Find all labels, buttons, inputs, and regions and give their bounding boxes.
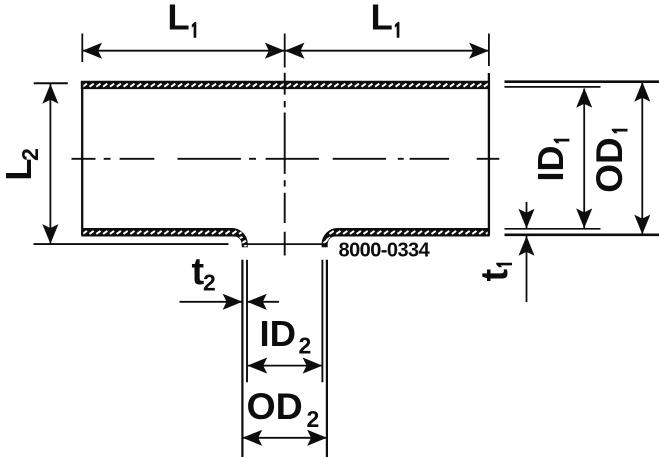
svg-text:ID: ID [260,313,297,354]
svg-text:L: L [167,0,189,38]
svg-text:8000-0334: 8000-0334 [339,240,431,262]
svg-text:2: 2 [307,406,320,432]
svg-text:OD: OD [247,385,303,427]
svg-text:ID: ID [530,146,571,182]
svg-text:L: L [371,0,393,38]
svg-text:2: 2 [203,270,216,296]
svg-text:OD: OD [589,137,630,193]
svg-text:2: 2 [17,148,43,161]
svg-text:2: 2 [299,333,312,359]
svg-text:t: t [474,269,516,282]
